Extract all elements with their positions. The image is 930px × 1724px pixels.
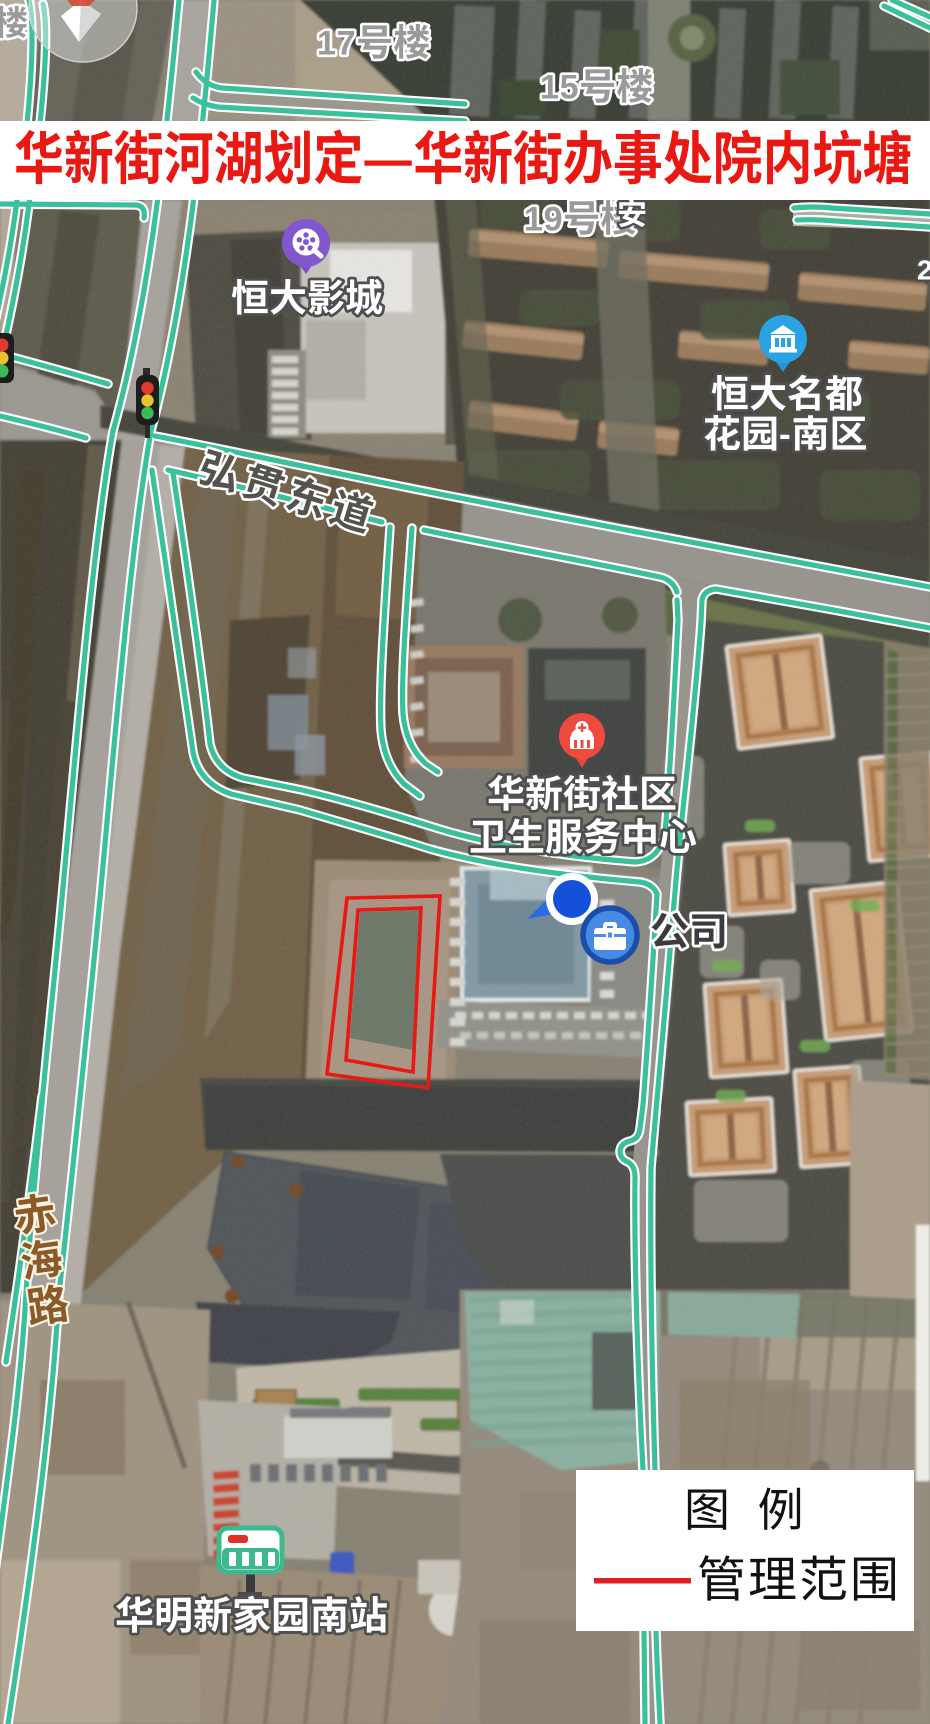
- svg-text:1: 1: [317, 24, 336, 62]
- svg-text:1: 1: [524, 200, 543, 238]
- svg-text:5: 5: [560, 68, 579, 106]
- svg-text:-: -: [779, 415, 791, 454]
- svg-text:2: 2: [917, 255, 930, 286]
- svg-text:9: 9: [544, 200, 563, 238]
- svg-text:7: 7: [337, 24, 356, 62]
- svg-text:1: 1: [540, 68, 559, 106]
